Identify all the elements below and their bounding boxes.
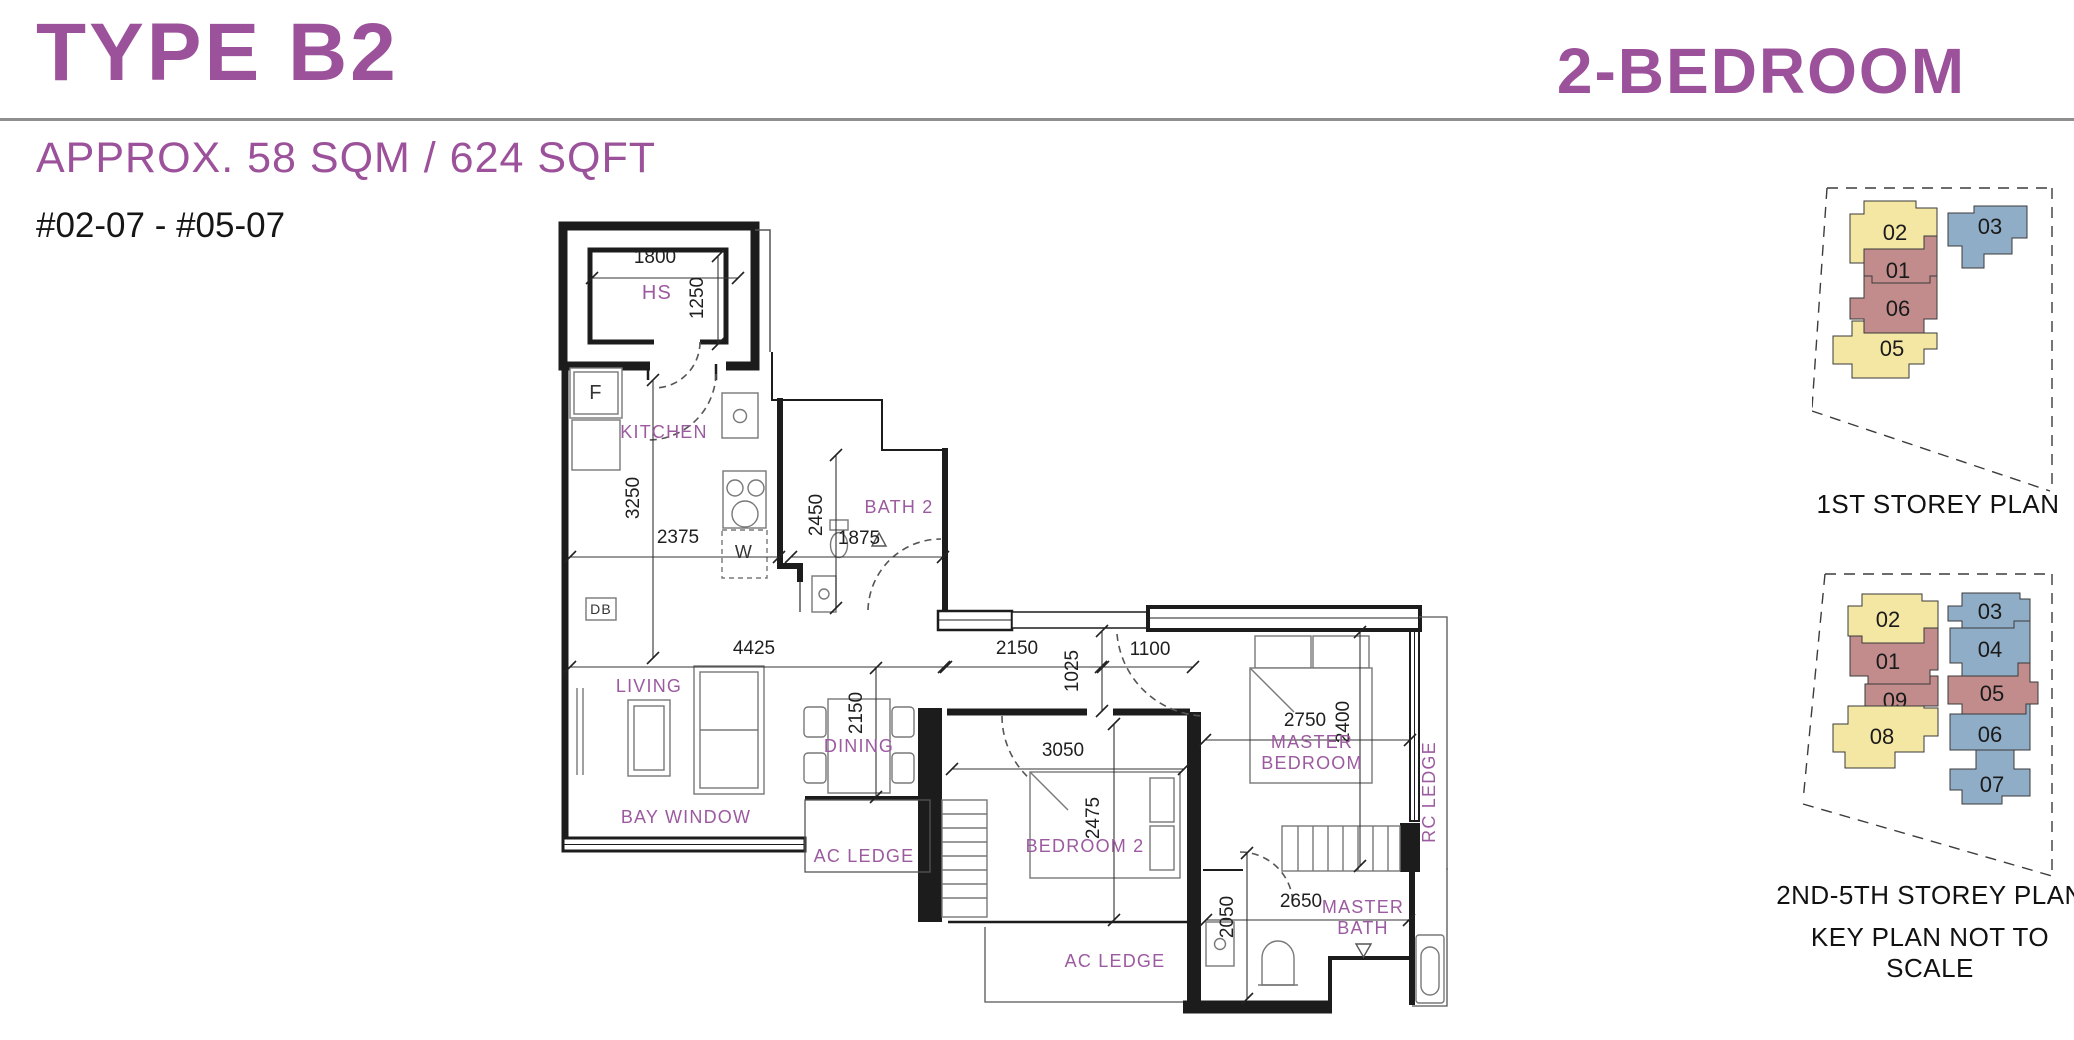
room-label-bedroom2: BEDROOM 2	[1026, 836, 1145, 856]
dimension-label-bath2_depth: 2450	[806, 494, 827, 536]
room-label-bath2: BATH 2	[865, 497, 934, 517]
dimension-label-hs_width: 1800	[634, 247, 676, 268]
key-plan-2nd-5th-storey: 020109080304050607	[1800, 566, 2060, 881]
dimension-label-master_door: 1100	[1130, 639, 1171, 660]
room-label-hs: HS	[642, 282, 672, 304]
dimension-label-hall_depth: 1025	[1062, 650, 1083, 692]
key-plan-note: KEY PLAN NOT TO SCALE	[1770, 922, 2074, 984]
unit-label-05: 05	[1980, 681, 2004, 706]
room-label-dining: DINING	[824, 736, 894, 756]
room-label-bay_window: BAY WINDOW	[621, 807, 751, 827]
dimension-label-kitchen_width: 2375	[657, 527, 699, 548]
dimension-label-hs_depth: 1250	[687, 277, 708, 319]
key-plan-2-title: 2ND-5TH STOREY PLAN	[1770, 880, 2074, 911]
unit-label-01: 01	[1886, 258, 1910, 283]
key-plan-1-title: 1ST STOREY PLAN	[1790, 489, 2074, 520]
dimension-label-master_bath_width: 2650	[1280, 891, 1322, 912]
key-plan-1st-storey: 0201060503	[1812, 186, 2062, 516]
room-label-master_bath: MASTER	[1322, 897, 1404, 917]
unit-label-07: 07	[1980, 772, 2004, 797]
unit-label-01: 01	[1876, 649, 1900, 674]
unit-label-08: 08	[1870, 724, 1894, 749]
room-label-db: DB	[590, 601, 612, 617]
dimension-label-master_bath_depth: 2050	[1217, 896, 1238, 938]
walls	[563, 226, 1447, 1007]
room-label-fridge: F	[589, 382, 602, 404]
dimension-label-bath2_width: 1875	[838, 528, 880, 549]
unit-label-02: 02	[1876, 607, 1900, 632]
dimension-label-bedroom2_depth: 2475	[1083, 797, 1104, 839]
unit-label-05: 05	[1880, 336, 1904, 361]
room-label-master_bedroom: MASTER	[1271, 732, 1353, 752]
room-label-ac_ledge_side: AC LEDGE	[814, 846, 915, 866]
room-label-master_bath: BATH	[1337, 918, 1388, 938]
room-label-master_bedroom: BEDROOM	[1261, 753, 1362, 773]
floorplan-page: TYPE B2 2-BEDROOM APPROX. 58 SQM / 624 S…	[0, 0, 2074, 1040]
unit-label-02: 02	[1883, 220, 1907, 245]
unit-label-03: 03	[1978, 214, 2002, 239]
unit-label-03: 03	[1978, 599, 2002, 624]
room-label-ac_ledge_bottom: AC LEDGE	[1065, 951, 1166, 971]
dimension-label-bedroom2_width: 3050	[1042, 740, 1084, 761]
unit-label-04: 04	[1978, 637, 2002, 662]
dimension-label-living_width: 4425	[733, 638, 775, 659]
unit-label-06: 06	[1978, 722, 2002, 747]
room-label-kitchen: KITCHEN	[620, 422, 707, 442]
floor-plan-drawing: 1800125032502375245018754425215011001025…	[0, 0, 2074, 1040]
unit-label-06: 06	[1886, 296, 1910, 321]
dimension-label-master_width: 2750	[1284, 710, 1326, 731]
dimension-label-dining_depth: 2150	[846, 692, 867, 734]
room-label-living: LIVING	[616, 676, 682, 696]
dimension-label-hall_width: 2150	[996, 638, 1038, 659]
room-label-washer: W	[735, 542, 753, 562]
dimension-label-kitchen_run: 3250	[623, 477, 644, 519]
room-label-rc_ledge: RC LEDGE	[1419, 741, 1439, 843]
